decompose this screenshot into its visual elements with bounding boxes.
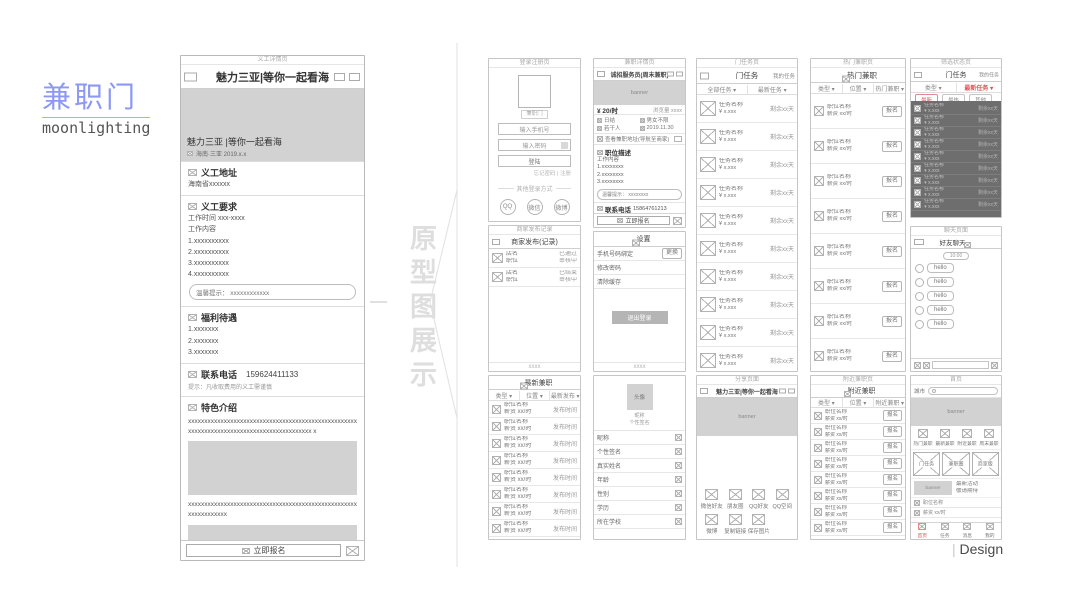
cat-latest[interactable]: 最新兼职 bbox=[935, 429, 954, 447]
profile-row[interactable]: 真实姓名 bbox=[594, 459, 685, 473]
publish-time: 发布时间 bbox=[553, 507, 577, 516]
welfare-icon bbox=[188, 314, 197, 321]
profile-row[interactable]: 学历 bbox=[594, 501, 685, 515]
share-qq[interactable]: QQ好友 bbox=[747, 489, 771, 510]
promo-title: 最新活动 bbox=[956, 481, 998, 488]
save-icon bbox=[752, 514, 765, 525]
job-list-item[interactable]: 职位名称 薪资 xx/时 发布时间 bbox=[489, 469, 580, 486]
publish-time: 发布时间 bbox=[553, 456, 577, 465]
apply-button[interactable]: 报名 bbox=[882, 281, 902, 292]
contact-hint: 提示：凡收取费用的义工需谨慎 bbox=[188, 382, 357, 391]
page-title: 诚招服务员(周末兼职) bbox=[611, 70, 669, 79]
job-list-item[interactable]: 职位名称 薪资 xx/时 报名 bbox=[811, 408, 905, 424]
cat-label: 附近兼职 bbox=[957, 440, 976, 447]
job-list-item[interactable]: 职位名称 薪资 xx/时 发布时间 bbox=[489, 503, 580, 520]
back-icon[interactable] bbox=[914, 239, 924, 245]
job-thumb-icon bbox=[814, 508, 822, 516]
job-salary: 薪资 xx/时 bbox=[825, 480, 880, 486]
signature-caption: 个性签名 bbox=[629, 419, 649, 426]
my-tasks-link[interactable]: 我的任务 bbox=[979, 71, 999, 78]
job-list-item[interactable]: 职位名称 薪资 xx/时 发布时间 bbox=[489, 418, 580, 435]
task-list-item[interactable]: 任务名称 ¥ x.xxx 剩余xx天 bbox=[911, 127, 1001, 139]
settings-row-cache[interactable]: 清除缓存 bbox=[594, 275, 685, 289]
job-list-item[interactable]: 职位名称 薪资 xx/时 报名 bbox=[811, 504, 905, 520]
job-list-item[interactable]: 职位名称 薪资 xx/时 发布时间 bbox=[489, 452, 580, 469]
entry-tasks[interactable]: 门任务 bbox=[913, 452, 940, 476]
change-button[interactable]: 更换 bbox=[662, 248, 682, 259]
task-list-item[interactable]: 任务名称 ¥ x.xxx 剩余xx天 bbox=[697, 123, 797, 151]
task-list-item[interactable]: 任务名称 ¥ x.xxx 剩余xx天 bbox=[697, 179, 797, 207]
job-title: 职位名称 bbox=[504, 402, 550, 409]
search-input[interactable] bbox=[928, 387, 998, 395]
favorite-icon[interactable] bbox=[349, 73, 360, 81]
job-price: ¥ 20/时 bbox=[597, 105, 618, 115]
apply-button[interactable]: 报名 bbox=[883, 426, 902, 437]
nearby-list: 职位名称 薪资 xx/时 报名 职位名称 薪资 xx/时 报名 职位名称 薪资 … bbox=[811, 408, 905, 536]
chat-message: hello bbox=[911, 289, 1001, 303]
cat-icon bbox=[962, 429, 972, 438]
job-salary: 薪资 xx/时 bbox=[825, 528, 880, 534]
job-salary: 薪资 xx/时 bbox=[504, 528, 550, 535]
detail-footer: 立即报名 bbox=[181, 540, 364, 560]
favorite-icon[interactable] bbox=[676, 72, 683, 77]
city-selector[interactable]: 城市 bbox=[914, 387, 925, 395]
edit-icon bbox=[675, 490, 682, 497]
filter-sort[interactable]: 热门兼职 ▾ bbox=[873, 84, 905, 93]
phone-input[interactable]: 输入手机号 bbox=[498, 123, 571, 135]
share-label: QQ空间 bbox=[772, 502, 792, 510]
task-list-item[interactable]: 任务名称 ¥ x.xxx 剩余xx天 bbox=[911, 103, 1001, 115]
req-line: 工作内容 bbox=[188, 224, 357, 235]
apply-button[interactable]: 报名 bbox=[882, 351, 902, 362]
job-title: 职位名称 bbox=[504, 453, 550, 460]
share-moments[interactable]: 朋友圈 bbox=[724, 489, 748, 510]
hot-header: 热门兼职 bbox=[811, 68, 905, 83]
cat-label: 周末兼职 bbox=[979, 440, 998, 447]
publish-row[interactable]: 店名 职位 已通过 审核中 bbox=[489, 249, 580, 268]
signup-button[interactable]: 立即报名 bbox=[186, 544, 341, 557]
task-thumb-icon bbox=[914, 165, 921, 172]
weibo-icon bbox=[705, 514, 718, 525]
req-line: 1.xxxxxxxxxx bbox=[188, 236, 357, 247]
job-thumb-icon bbox=[814, 281, 824, 291]
back-icon[interactable] bbox=[700, 388, 708, 394]
tab-tasks[interactable]: 任务 bbox=[934, 523, 957, 539]
task-thumb-icon bbox=[914, 177, 921, 184]
design-showcase-page: 兼职门 moonlighting 原型图展示 义工详情页 魅力三亚|等你一起看海… bbox=[0, 0, 1070, 600]
job-list-item[interactable]: 职位名称 薪资 xx/时 发布时间 bbox=[489, 486, 580, 503]
avatar[interactable] bbox=[915, 306, 924, 315]
weibo-login-button[interactable]: 微博 bbox=[554, 199, 570, 215]
plus-icon[interactable] bbox=[991, 362, 998, 369]
publish-time: 发布时间 bbox=[553, 524, 577, 533]
messages-tab-icon bbox=[963, 523, 971, 530]
share-icon[interactable] bbox=[334, 73, 345, 81]
signup-icon bbox=[242, 548, 250, 554]
tag-icon bbox=[597, 118, 602, 123]
status-line: 审核中 bbox=[559, 277, 577, 284]
task-price: ¥ x.xxx bbox=[924, 145, 975, 151]
message-bubble: hello bbox=[927, 277, 954, 287]
settings-row-phone[interactable]: 手机号码绑定 更换 bbox=[594, 247, 685, 261]
task-price: ¥ x.xxx bbox=[719, 277, 767, 284]
settings-row-password[interactable]: 修改密码 bbox=[594, 261, 685, 275]
job-list-item[interactable]: 职位名称 薪资 xx/时 报名 bbox=[811, 199, 905, 234]
apply-button[interactable]: 报名 bbox=[882, 141, 902, 152]
job-salary: 薪资 xx/时 bbox=[827, 286, 879, 293]
logout-button[interactable]: 退出登录 bbox=[612, 311, 668, 324]
share-qzone[interactable]: QQ空间 bbox=[771, 489, 795, 510]
filter-sort[interactable]: 最新发布 ▾ bbox=[549, 391, 580, 400]
job-list-item[interactable]: 职位名称 薪资 xx/时 报名 bbox=[811, 94, 905, 129]
job-salary: 薪资 xx/时 bbox=[504, 460, 550, 467]
avatar[interactable]: 头像 bbox=[627, 384, 653, 410]
tab-label: 消息 bbox=[962, 532, 972, 539]
filter-sort[interactable]: 附近兼职 ▾ bbox=[873, 398, 905, 407]
filter-latest-active[interactable]: 最新任务 ▾ bbox=[956, 83, 1002, 92]
task-price: ¥ x.xxx bbox=[924, 181, 975, 187]
task-deadline: 剩余xx天 bbox=[770, 216, 794, 225]
message-bubble: hello bbox=[927, 319, 954, 329]
emoji-icon[interactable] bbox=[923, 362, 930, 369]
job-salary: 薪资 xx/时 bbox=[827, 111, 879, 118]
profile-row[interactable]: 个性签名 bbox=[594, 445, 685, 459]
signup-button[interactable]: 立即报名 bbox=[597, 216, 670, 225]
message-input[interactable] bbox=[932, 361, 989, 369]
task-title: 任务名称 bbox=[719, 270, 767, 277]
job-thumb-icon bbox=[814, 460, 822, 468]
page-title: 魅力三亚|等你一起看海 bbox=[716, 387, 778, 396]
menu-icon[interactable] bbox=[520, 382, 528, 389]
status-line: 已通过 bbox=[559, 251, 577, 258]
job-thumb-icon bbox=[492, 439, 501, 448]
back-icon[interactable] bbox=[632, 239, 640, 246]
share-label: QQ好友 bbox=[749, 502, 769, 510]
apply-button[interactable]: 报名 bbox=[882, 176, 902, 187]
task-list-item[interactable]: 任务名称 ¥ x.xxx 剩余xx天 bbox=[697, 207, 797, 235]
home-list-item[interactable]: 职位名称 bbox=[911, 498, 1001, 508]
feature-title: 特色介绍 bbox=[201, 401, 237, 414]
qzone-icon bbox=[776, 489, 789, 500]
task-list-item[interactable]: 任务名称 ¥ x.xxx 剩余xx天 bbox=[697, 319, 797, 347]
job-title: 职位名称 bbox=[827, 209, 879, 216]
page-caption: 分享页面 bbox=[697, 376, 797, 385]
cat-weekend[interactable]: 周末兼职 bbox=[979, 429, 998, 447]
task-deadline: 剩余xx天 bbox=[770, 244, 794, 253]
nav-icon[interactable] bbox=[674, 136, 682, 142]
filter-location[interactable]: 位置 ▾ bbox=[519, 391, 550, 400]
job-thumb-icon bbox=[914, 510, 920, 516]
task-list-item[interactable]: 任务名称 ¥ x.xxx 剩余xx天 bbox=[911, 115, 1001, 127]
task-deadline: 剩余xx天 bbox=[770, 188, 794, 197]
latest-header: 最新兼职 bbox=[489, 376, 580, 390]
task-list-item[interactable]: 任务名称 ¥ x.xxx 剩余xx天 bbox=[911, 187, 1001, 199]
home-list-item[interactable]: 薪资 xx/时 bbox=[911, 508, 1001, 518]
task-list-item[interactable]: 任务名称 ¥ x.xxx 剩余xx天 bbox=[911, 163, 1001, 175]
job-list-item[interactable]: 职位名称 薪资 xx/时 报名 bbox=[811, 424, 905, 440]
job-salary: 薪资 xx/时 bbox=[825, 512, 880, 518]
avatar[interactable] bbox=[915, 292, 924, 301]
task-list-item[interactable]: 任务名称 ¥ x.xxx 剩余xx天 bbox=[697, 151, 797, 179]
avatar[interactable] bbox=[915, 320, 924, 329]
filter-location[interactable]: 位置 ▾ bbox=[842, 398, 874, 407]
share-copy-link[interactable]: 复制链接 bbox=[724, 514, 748, 535]
signup-label: 立即报名 bbox=[254, 545, 286, 556]
voice-icon[interactable] bbox=[914, 362, 921, 369]
job-title: 职位名称 bbox=[825, 473, 880, 480]
filter-header: 门任务 我的任务 bbox=[911, 68, 1001, 82]
task-deadline: 剩余xx天 bbox=[978, 201, 998, 208]
task-title: 任务名称 bbox=[719, 214, 767, 221]
task-deadline: 剩余xx天 bbox=[770, 300, 794, 309]
row-label: 真实姓名 bbox=[597, 461, 672, 470]
job-list-item[interactable]: 职位名称 薪资 xx/时 发布时间 bbox=[489, 401, 580, 418]
task-thumb-icon bbox=[700, 185, 716, 200]
publish-time: 发布时间 bbox=[553, 405, 577, 414]
entry-label: 门任务 bbox=[918, 461, 935, 468]
row-label: 手机号码绑定 bbox=[597, 249, 659, 258]
job-list-item[interactable]: 职位名称 薪资 xx/时 报名 bbox=[811, 339, 905, 372]
filter-type[interactable]: 类型 ▾ bbox=[811, 84, 842, 93]
task-thumb-icon bbox=[700, 297, 716, 312]
job-list-item[interactable]: 职位名称 薪资 xx/时 报名 bbox=[811, 234, 905, 269]
task-deadline: 剩余xx天 bbox=[978, 189, 998, 196]
task-title: 任务名称 bbox=[719, 158, 767, 165]
apply-button[interactable]: 报名 bbox=[883, 490, 902, 501]
nearby-jobs-screen: 附近兼职页 附近兼职 类型 ▾ 位置 ▾ 附近兼职 ▾ 职位名称 薪资 xx/时… bbox=[810, 375, 906, 540]
agreement-link[interactable]: 用户协议 bbox=[523, 220, 545, 222]
task-list-item[interactable]: 任务名称 ¥ x.xxx 剩余xx天 bbox=[911, 199, 1001, 211]
job-salary: 薪资 xx/时 bbox=[827, 216, 879, 223]
job-views: 浏览量 xxxx bbox=[653, 106, 682, 114]
task-deadline: 剩余xx天 bbox=[978, 105, 998, 112]
publish-row[interactable]: 店名 职位 已结束 审核中 bbox=[489, 268, 580, 287]
edit-icon bbox=[675, 504, 682, 511]
task-list-item[interactable]: 任务名称 ¥ x.xxx 剩余xx天 bbox=[697, 347, 797, 372]
job-thumb-icon bbox=[814, 141, 824, 151]
task-list-item[interactable]: 任务名称 ¥ x.xxx 剩余xx天 bbox=[697, 263, 797, 291]
task-deadline: 剩余xx天 bbox=[770, 104, 794, 113]
entry-merchant[interactable]: 商家版 bbox=[972, 452, 999, 476]
task-deadline: 剩余xx天 bbox=[770, 132, 794, 141]
job-thumb-icon bbox=[492, 524, 501, 533]
edit-icon bbox=[675, 448, 682, 455]
filter-type[interactable]: 类型 ▾ bbox=[811, 398, 842, 407]
dimmed-task-list: 任务名称 ¥ x.xxx 剩余xx天 任务名称 ¥ x.xxx 剩余xx天 任务… bbox=[911, 101, 1001, 217]
back-icon[interactable] bbox=[184, 72, 197, 81]
task-list-item[interactable]: 任务名称 ¥ x.xxx 剩余xx天 bbox=[911, 175, 1001, 187]
chat-message: hello bbox=[911, 303, 1001, 317]
task-thumb-icon bbox=[914, 141, 921, 148]
job-list-item[interactable]: 职位名称 薪资 xx/时 报名 bbox=[811, 129, 905, 164]
tasks-screen: 门任务页 门任务 我的任务 全部任务 ▾ 最新任务 ▾ 任务名称 ¥ x.xxx… bbox=[696, 58, 798, 372]
menu-icon[interactable] bbox=[844, 391, 851, 397]
job-list-item[interactable]: 职位名称 薪资 xx/时 报名 bbox=[811, 164, 905, 199]
filter-location[interactable]: 位置 ▾ bbox=[842, 84, 874, 93]
job-list-item[interactable]: 职位名称 薪资 xx/时 报名 bbox=[811, 269, 905, 304]
contact-title: 联系电话 bbox=[201, 368, 237, 381]
home-banner: banner bbox=[911, 398, 1001, 426]
apply-button[interactable]: 报名 bbox=[883, 506, 902, 517]
page-title: 附近兼职 bbox=[848, 386, 876, 396]
share-icon[interactable] bbox=[667, 72, 674, 77]
task-list-item[interactable]: 任务名称 ¥ x.xxx 剩余xx天 bbox=[697, 95, 797, 123]
row-label: 性别 bbox=[597, 489, 672, 498]
contact-phone[interactable]: 159624411133 bbox=[246, 370, 298, 379]
apply-button[interactable]: 报名 bbox=[882, 211, 902, 222]
my-tasks-link[interactable]: 我的任务 bbox=[773, 72, 795, 80]
task-thumb-icon bbox=[700, 353, 716, 368]
apply-button[interactable]: 报名 bbox=[883, 458, 902, 469]
cat-nearby[interactable]: 附近兼职 bbox=[957, 429, 976, 447]
share-weibo[interactable]: 微博 bbox=[700, 514, 724, 535]
timestamp-pill: 10:00 bbox=[943, 252, 969, 260]
share-icon[interactable] bbox=[779, 389, 786, 394]
location-icon bbox=[187, 151, 193, 156]
row-label: 年龄 bbox=[597, 475, 672, 484]
job-title: 职位名称 bbox=[504, 487, 550, 494]
task-price: ¥ x.xxx bbox=[719, 361, 767, 368]
job-title: 职位名称 bbox=[825, 425, 880, 432]
job-list-item[interactable]: 职位名称 薪资 xx/时 报名 bbox=[811, 488, 905, 504]
apply-button[interactable]: 报名 bbox=[883, 410, 902, 421]
apply-button[interactable]: 报名 bbox=[883, 442, 902, 453]
back-icon[interactable] bbox=[597, 71, 605, 77]
apply-button[interactable]: 报名 bbox=[882, 316, 902, 327]
signup-icon bbox=[617, 218, 623, 223]
apply-button[interactable]: 报名 bbox=[882, 246, 902, 257]
share-wechat[interactable]: 微信好友 bbox=[700, 489, 724, 510]
status-line: 审核中 bbox=[559, 258, 577, 265]
job-salary: 薪资 xx/时 bbox=[825, 448, 880, 454]
search-icon bbox=[932, 389, 936, 393]
favorite-icon[interactable] bbox=[788, 389, 795, 394]
apply-button[interactable]: 报名 bbox=[883, 474, 902, 485]
brand: 兼职门 moonlighting bbox=[42, 74, 150, 137]
requirements-title: 义工要求 bbox=[201, 200, 237, 213]
job-tag: 男女不限 bbox=[647, 116, 669, 124]
nearby-header: 附近兼职 bbox=[811, 385, 905, 398]
job-list-item[interactable]: 职位名称 薪资 xx/时 报名 bbox=[811, 456, 905, 472]
job-salary: 薪资 xx/时 bbox=[827, 251, 879, 258]
avatar[interactable] bbox=[915, 278, 924, 287]
back-icon[interactable] bbox=[492, 239, 500, 245]
address-section: 义工地址 海南省xxxxxx bbox=[181, 161, 364, 195]
brand-title: 兼职门 bbox=[42, 74, 150, 118]
job-thumb-icon bbox=[492, 456, 501, 465]
task-list-item[interactable]: 任务名称 ¥ x.xxx 剩余xx天 bbox=[911, 151, 1001, 163]
job-title: 职位名称 bbox=[504, 436, 550, 443]
task-deadline: 剩余xx天 bbox=[978, 165, 998, 172]
job-thumb-icon bbox=[492, 405, 501, 414]
tasks-tab-icon bbox=[941, 523, 949, 530]
cat-hot[interactable]: 热门兼职 bbox=[913, 429, 932, 447]
job-thumb-icon bbox=[492, 507, 501, 516]
job-thumb-icon bbox=[814, 106, 824, 116]
promo-row[interactable]: banner 最新活动 敬请期待 bbox=[911, 479, 1001, 498]
page-title: 最新兼职 bbox=[525, 378, 553, 388]
captcha-icon[interactable] bbox=[561, 142, 568, 149]
share-save-image[interactable]: 保存图片 bbox=[747, 514, 771, 535]
back-icon[interactable] bbox=[914, 72, 922, 78]
footer-action-icon[interactable] bbox=[346, 546, 359, 556]
login-links[interactable]: 忘记密码 | 注册 bbox=[534, 169, 572, 177]
tab-home[interactable]: 首页 bbox=[911, 523, 934, 539]
task-thumb-icon bbox=[700, 269, 716, 284]
password-input[interactable]: 输入密码 bbox=[498, 139, 571, 151]
task-list-item[interactable]: 任务名称 ¥ x.xxx 剩余xx天 bbox=[911, 139, 1001, 151]
edit-icon bbox=[675, 462, 682, 469]
job-list-item[interactable]: 职位名称 薪资 xx/时 报名 bbox=[811, 520, 905, 536]
filter-bar: 全部任务 ▾ 最新任务 ▾ bbox=[697, 84, 797, 95]
task-list-item[interactable]: 任务名称 ¥ x.xxx 剩余xx天 bbox=[697, 291, 797, 319]
filter-all[interactable]: 全部任务 ▾ bbox=[697, 85, 747, 94]
job-list-item[interactable]: 职位名称 薪资 xx/时 发布时间 bbox=[489, 520, 580, 537]
apply-button[interactable]: 报名 bbox=[883, 522, 902, 533]
hero-image: 魅力三亚 |等你一起看海 海南·三亚 2019.x.x bbox=[181, 89, 364, 161]
job-list-item[interactable]: 职位名称 薪资 xx/时 报名 bbox=[811, 472, 905, 488]
filter-type[interactable]: 类型 ▾ bbox=[911, 83, 956, 92]
job-list-item[interactable]: 职位名称 薪资 xx/时 报名 bbox=[811, 304, 905, 339]
task-price: ¥ x.xxx bbox=[924, 205, 975, 211]
back-icon[interactable] bbox=[700, 72, 709, 79]
filter-type[interactable]: 类型 ▾ bbox=[489, 391, 519, 400]
profile-row[interactable]: 年龄 bbox=[594, 473, 685, 487]
login-button[interactable]: 登陆 bbox=[498, 155, 571, 167]
avatar[interactable] bbox=[915, 264, 924, 273]
job-list-item[interactable]: 职位名称 薪资 xx/时 发布时间 bbox=[489, 435, 580, 452]
footer-action-icon[interactable] bbox=[673, 217, 682, 225]
row-label: 昵称 bbox=[597, 433, 672, 442]
entry-circle[interactable]: 兼职圈 bbox=[942, 452, 969, 476]
cat-icon bbox=[940, 429, 950, 438]
filter-latest[interactable]: 最新任务 ▾ bbox=[747, 85, 798, 94]
job-tag: 若干人 bbox=[604, 124, 621, 132]
job-thumb-icon bbox=[814, 428, 822, 436]
job-list-item[interactable]: 职位名称 薪资 xx/时 报名 bbox=[811, 440, 905, 456]
task-price: ¥ x.xxx bbox=[719, 137, 767, 144]
edit-icon bbox=[675, 434, 682, 441]
page-caption: 商家发布记录 bbox=[489, 226, 580, 235]
menu-icon[interactable] bbox=[842, 75, 850, 82]
page-caption: 首页 bbox=[911, 376, 1001, 385]
publish-time: 发布时间 bbox=[553, 439, 577, 448]
tab-messages[interactable]: 消息 bbox=[956, 523, 979, 539]
tab-profile[interactable]: 我的 bbox=[979, 523, 1002, 539]
latest-list: 职位名称 薪资 xx/时 发布时间 职位名称 薪资 xx/时 发布时间 职位名称… bbox=[489, 401, 580, 537]
contact-phone[interactable]: 15864761213 bbox=[633, 206, 667, 212]
apply-button[interactable]: 报名 bbox=[882, 106, 902, 117]
profile-row[interactable]: 昵称 bbox=[594, 431, 685, 445]
task-price: ¥ x.xxx bbox=[719, 249, 767, 256]
job-name: 职位 bbox=[506, 258, 556, 265]
job-title: 职位名称 bbox=[825, 505, 880, 512]
share-label: 朋友圈 bbox=[727, 502, 744, 510]
profile-row[interactable]: 性别 bbox=[594, 487, 685, 501]
more-icon[interactable] bbox=[964, 242, 971, 248]
qq-login-button[interactable]: QQ bbox=[500, 199, 516, 215]
warm-tip: 温馨提示： xxxxxxxx bbox=[597, 189, 682, 200]
welfare-section: 福利待遇 1.xxxxxxx 2.xxxxxxx 3.xxxxxxx bbox=[181, 306, 364, 363]
profile-row[interactable]: 所在学校 bbox=[594, 515, 685, 529]
task-price: ¥ x.xxx bbox=[719, 165, 767, 172]
message-bubble: hello bbox=[927, 291, 954, 301]
task-price: ¥ x.xxx bbox=[719, 193, 767, 200]
location-row[interactable]: 查看兼职地址(导航至商家) bbox=[594, 134, 685, 145]
task-list-item[interactable]: 任务名称 ¥ x.xxx 剩余xx天 bbox=[697, 235, 797, 263]
wechat-login-button[interactable]: 微信 bbox=[527, 199, 543, 215]
share-label: 微信好友 bbox=[701, 502, 723, 510]
